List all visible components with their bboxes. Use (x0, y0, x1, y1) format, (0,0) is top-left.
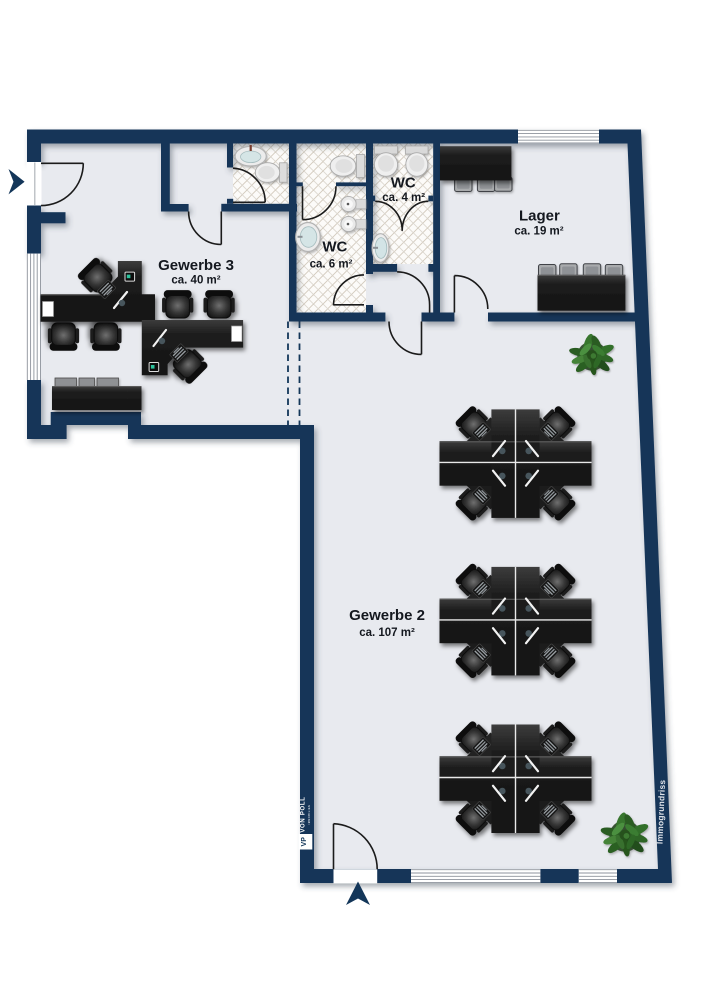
svg-text:Lager: Lager (519, 208, 560, 225)
svg-text:ca. 4 m²: ca. 4 m² (382, 192, 425, 204)
svg-text:ca. 19 m²: ca. 19 m² (514, 226, 563, 238)
svg-text:WC: WC (391, 174, 416, 191)
svg-text:Gewerbe 3: Gewerbe 3 (158, 257, 234, 274)
svg-text:WC: WC (322, 238, 347, 255)
svg-text:Gewerbe 2: Gewerbe 2 (349, 607, 425, 624)
svg-text:VON POLL: VON POLL (301, 796, 307, 832)
svg-text:ca. 6 m²: ca. 6 m² (310, 259, 353, 271)
svg-text:VP: VP (301, 837, 308, 847)
svg-text:IMMOBILIEN: IMMOBILIEN (309, 805, 311, 825)
svg-text:ca. 40 m²: ca. 40 m² (171, 275, 220, 287)
svg-text:ca. 107 m²: ca. 107 m² (359, 627, 415, 639)
